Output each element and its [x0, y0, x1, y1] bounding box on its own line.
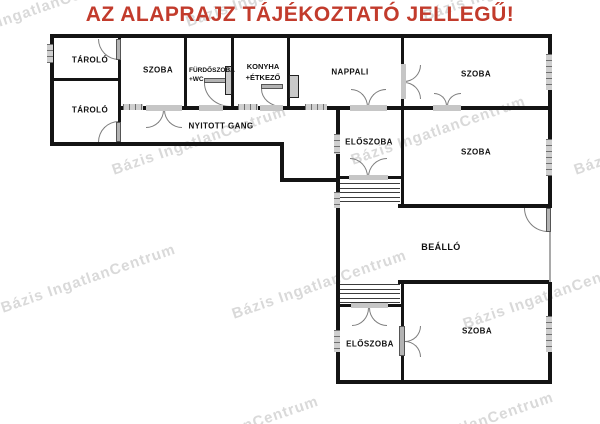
watermark-text: Bázis IngatlanCentrum [377, 390, 554, 424]
door-sill [260, 105, 283, 111]
wall [401, 34, 404, 65]
open-wall [549, 232, 551, 282]
door-arc [524, 208, 548, 232]
window [47, 44, 53, 63]
door-arc [404, 65, 421, 82]
room-label-nyitott-gang: NYITOTT GANG [188, 122, 253, 131]
room-label-nappali: NAPPALI [331, 68, 368, 77]
window [546, 139, 552, 176]
door-arc [404, 82, 421, 99]
room-label-tarolo-2: TÁROLÓ [72, 106, 108, 115]
door-sill [351, 303, 388, 308]
stair-line [340, 298, 400, 299]
wall [398, 280, 551, 284]
wall [50, 34, 552, 38]
room-label-szoba-bottom: SZOBA [462, 327, 492, 336]
wall [280, 142, 284, 182]
window [546, 316, 552, 352]
door-arc [405, 341, 421, 357]
room-label-beallo: BEÁLLÓ [421, 242, 460, 252]
door-sill [349, 175, 388, 180]
watermark-text: Bázis IngatlanCentrum [0, 242, 175, 320]
door-leaf [399, 326, 405, 356]
stair-line [340, 284, 400, 285]
room-label-szoba-top-left: SZOBA [143, 66, 173, 75]
watermark-text: Bázis IngatlanCentrum [142, 394, 319, 424]
stair-line [340, 293, 400, 294]
door-sill [350, 105, 387, 111]
wall [401, 355, 404, 384]
door-arc [146, 110, 164, 128]
door-sill [199, 105, 223, 111]
room-label-eloszoba-lower: ELŐSZOBA [346, 340, 394, 349]
watermark-text: Bázis IngatlanCentrum [461, 258, 600, 336]
wall [280, 178, 338, 182]
wall [401, 106, 404, 207]
window [334, 134, 340, 154]
room-label-konyha: KONYHA+ÉTKEZŐ [246, 61, 281, 83]
stair-line [340, 289, 400, 290]
door-leaf [546, 208, 551, 232]
wall [50, 142, 283, 146]
door-sill [433, 105, 461, 111]
stair-line [340, 192, 400, 193]
room-label-tarolo-1: TÁROLÓ [72, 56, 108, 65]
door-arc [405, 326, 421, 342]
wall [336, 380, 552, 384]
wall [50, 78, 121, 81]
page-title: AZ ALAPRAJZ TÁJÉKOZTATÓ JELLEGŰ! [0, 3, 600, 27]
window [238, 104, 258, 110]
floor-plan: AZ ALAPRAJZ TÁJÉKOZTATÓ JELLEGŰ! TÁROLÓ … [0, 0, 600, 424]
wall [184, 34, 187, 109]
stair-line [340, 201, 400, 202]
fixture [289, 75, 299, 98]
door-leaf [116, 122, 121, 142]
window [546, 54, 552, 90]
stair-line [340, 197, 400, 198]
door-sill [401, 64, 406, 99]
window [334, 192, 340, 208]
window [334, 330, 340, 352]
room-label-furdoszoba: FÜRDŐSZOBA+WC [189, 66, 235, 84]
door-arc [369, 308, 387, 326]
wall [398, 204, 551, 208]
stair-line [340, 188, 400, 189]
window [305, 104, 327, 110]
room-label-eloszoba-upper: ELŐSZOBA [345, 138, 393, 147]
window [123, 104, 143, 110]
room-label-szoba-top-right: SZOBA [461, 70, 491, 79]
stair-line [340, 183, 400, 184]
watermark-text: Bázis IngatlanCentrum [572, 104, 600, 182]
door-leaf [116, 39, 121, 60]
door-arc [352, 308, 369, 326]
door-arc [164, 110, 182, 128]
room-label-szoba-middle: SZOBA [461, 148, 491, 157]
wall [118, 106, 551, 110]
door-leaf [261, 84, 283, 89]
door-sill [146, 105, 182, 111]
